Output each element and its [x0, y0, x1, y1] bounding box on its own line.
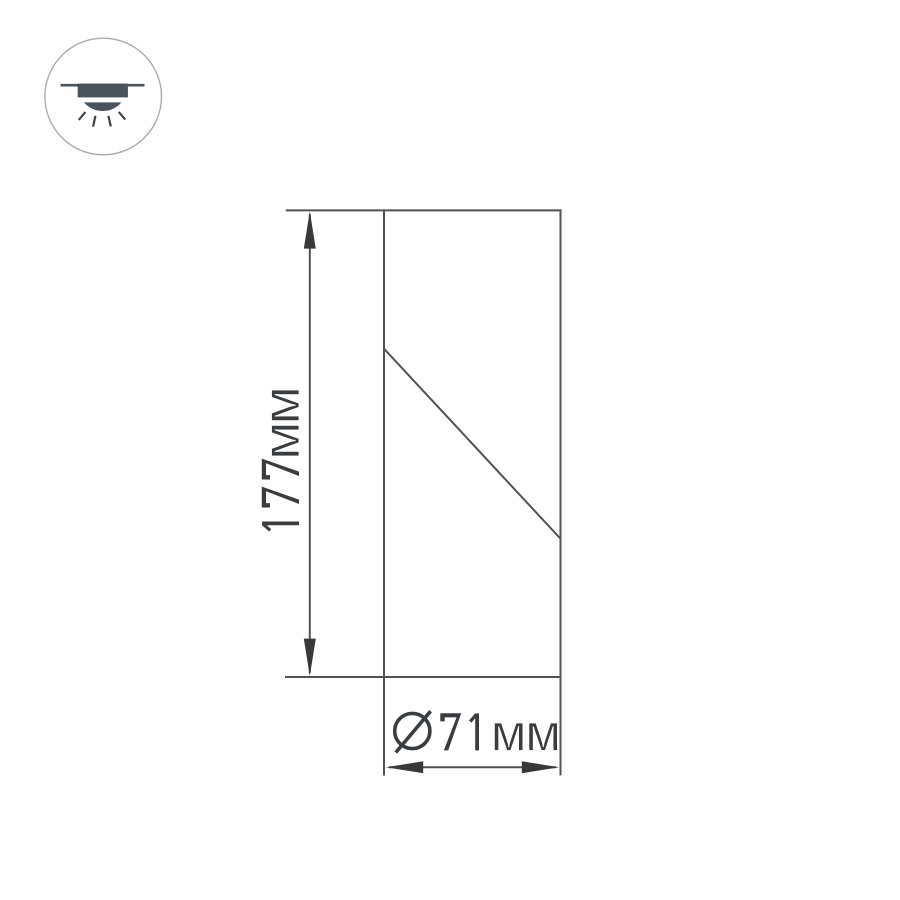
svg-text:м: м	[253, 421, 311, 460]
svg-text:м: м	[525, 705, 561, 763]
svg-text:м: м	[253, 386, 311, 425]
svg-text:м: м	[491, 705, 527, 763]
